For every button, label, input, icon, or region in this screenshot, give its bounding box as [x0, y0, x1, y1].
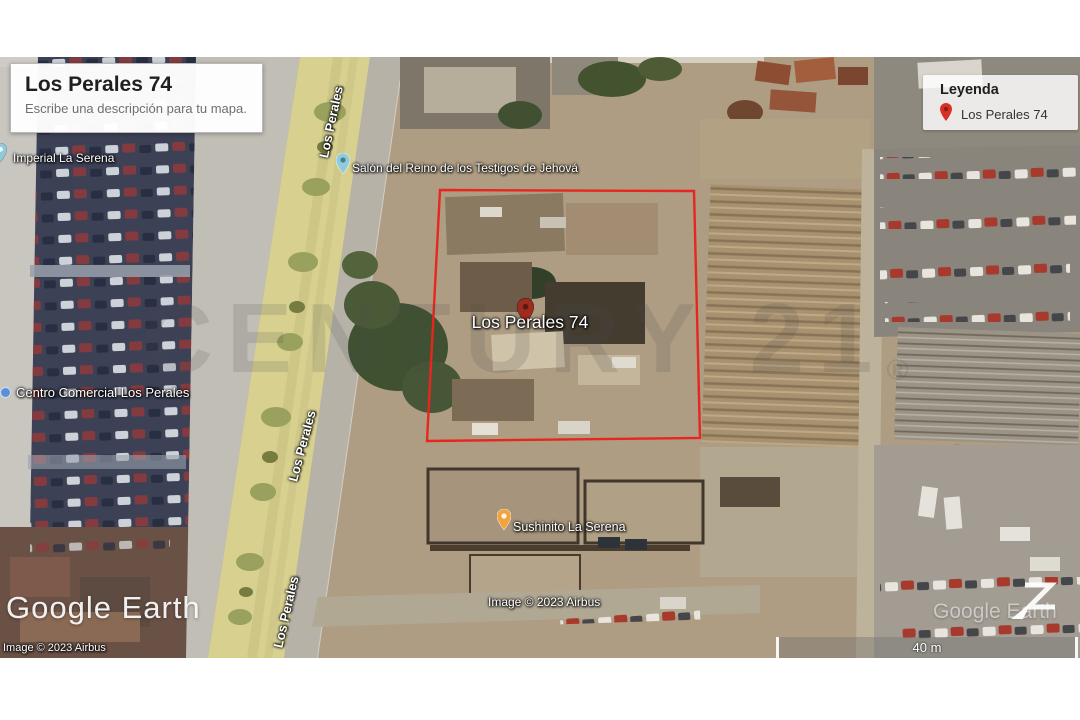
scale-bar: 40 m — [776, 637, 1078, 658]
scale-bar-label: 40 m — [913, 640, 942, 655]
map-title-card[interactable]: Los Perales 74 Escribe una descripción p… — [10, 63, 263, 133]
compass-icon — [1007, 581, 1065, 628]
label-property: Los Perales 74 — [460, 312, 600, 333]
salon-pin-icon[interactable] — [336, 153, 350, 174]
google-earth-screenshot: { "title_card": { "title": "Los Perales … — [0, 0, 1080, 720]
legend-item[interactable]: Los Perales 74 — [940, 103, 1078, 126]
centro-dot-icon[interactable] — [0, 387, 11, 398]
legend-card: Leyenda Los Perales 74 — [923, 75, 1078, 130]
label-imperial-la-serena: Imperial La Serena — [13, 151, 114, 165]
attribution-center: Image © 2023 Airbus — [488, 595, 600, 609]
label-sushinito: Sushinito La Serena — [513, 520, 626, 534]
attribution-left: Image © 2023 Airbus — [3, 642, 106, 654]
legend-item-label: Los Perales 74 — [961, 107, 1048, 122]
sushinito-pin-icon[interactable] — [497, 509, 511, 530]
label-centro-comercial: Centro Comercial Los Perales — [16, 385, 189, 400]
legend-red-pin-icon — [940, 103, 952, 126]
label-salon-del-reino: Salón del Reino de los Testigos de Jehov… — [352, 161, 578, 175]
map-canvas[interactable]: Imperial La Serena Salón del Reino de lo… — [0, 57, 1080, 658]
legend-title: Leyenda — [940, 82, 1078, 98]
map-description-placeholder[interactable]: Escribe una descripción para tu mapa. — [25, 101, 248, 116]
imperial-pin-icon[interactable] — [0, 143, 7, 162]
map-title[interactable]: Los Perales 74 — [25, 73, 248, 97]
google-earth-logo-left: Google Earth — [6, 590, 201, 626]
satellite-imagery — [0, 57, 1080, 658]
